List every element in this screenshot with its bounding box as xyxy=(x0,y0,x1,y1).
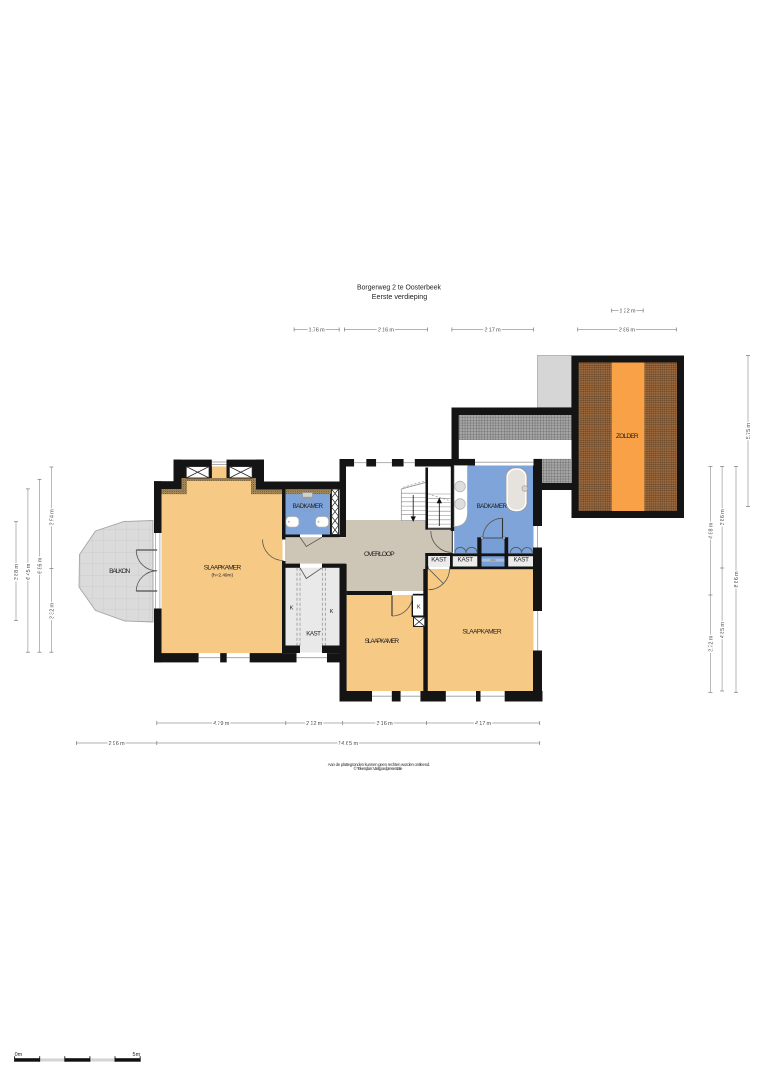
svg-text:3.72 m: 3.72 m xyxy=(708,635,714,652)
svg-text:Eerste verdieping: Eerste verdieping xyxy=(372,292,428,301)
svg-text:1.76 m: 1.76 m xyxy=(309,328,326,334)
svg-text:© Tekenplan: Vastgoedpresentat: © Tekenplan: Vastgoedpresentatie xyxy=(354,766,404,771)
svg-text:2.96 m: 2.96 m xyxy=(109,741,126,747)
svg-text:3.88 m: 3.88 m xyxy=(14,564,20,581)
svg-text:6.86 m: 6.86 m xyxy=(38,557,44,574)
svg-text:1.22 m: 1.22 m xyxy=(619,309,636,315)
svg-text:14.65 m: 14.65 m xyxy=(338,741,358,747)
svg-text:5.75 m: 5.75 m xyxy=(746,423,752,440)
svg-text:4.17 m: 4.17 m xyxy=(475,721,492,727)
svg-text:KAST: KAST xyxy=(431,557,447,564)
svg-text:2.12 m: 2.12 m xyxy=(306,721,323,727)
svg-text:K: K xyxy=(330,609,334,615)
svg-text:4.79 m: 4.79 m xyxy=(213,721,230,727)
svg-text:KAST: KAST xyxy=(458,557,474,564)
svg-text:3.16 m: 3.16 m xyxy=(377,721,394,727)
svg-text:ZOLDER: ZOLDER xyxy=(616,433,639,440)
svg-text:3.32 m: 3.32 m xyxy=(49,602,55,619)
svg-text:0m: 0m xyxy=(15,1052,23,1058)
svg-text:K: K xyxy=(417,604,421,610)
svg-text:3.54 m: 3.54 m xyxy=(49,509,55,526)
svg-text:BALKON: BALKON xyxy=(109,568,130,575)
svg-text:3.16 m: 3.16 m xyxy=(378,328,395,334)
svg-text:5m: 5m xyxy=(133,1052,141,1058)
svg-text:3.17 m: 3.17 m xyxy=(485,328,502,334)
svg-text:4.88 m: 4.88 m xyxy=(708,522,714,539)
svg-text:KAST: KAST xyxy=(306,631,321,638)
svg-text:(h=2.49m): (h=2.49m) xyxy=(212,573,234,579)
svg-text:4.85 m: 4.85 m xyxy=(720,622,726,639)
svg-text:8.86 m: 8.86 m xyxy=(734,571,740,588)
svg-text:SLAAPKAMER: SLAAPKAMER xyxy=(365,638,400,645)
svg-text:K: K xyxy=(290,606,294,612)
svg-text:BADKAMER: BADKAMER xyxy=(477,503,508,510)
svg-text:SLAAPKAMER: SLAAPKAMER xyxy=(204,565,242,572)
svg-text:KAST: KAST xyxy=(513,557,529,564)
svg-text:3.86 m: 3.86 m xyxy=(619,328,636,334)
svg-text:SLAAPKAMER: SLAAPKAMER xyxy=(462,629,501,636)
svg-text:OVERLOOP: OVERLOOP xyxy=(364,551,395,558)
svg-text:6.45 m: 6.45 m xyxy=(26,563,32,580)
svg-text:3.86 m: 3.86 m xyxy=(720,509,726,526)
svg-text:BADKAMER: BADKAMER xyxy=(293,503,324,510)
svg-text:Borgerweg 2 te Oosterbeek: Borgerweg 2 te Oosterbeek xyxy=(357,282,441,291)
